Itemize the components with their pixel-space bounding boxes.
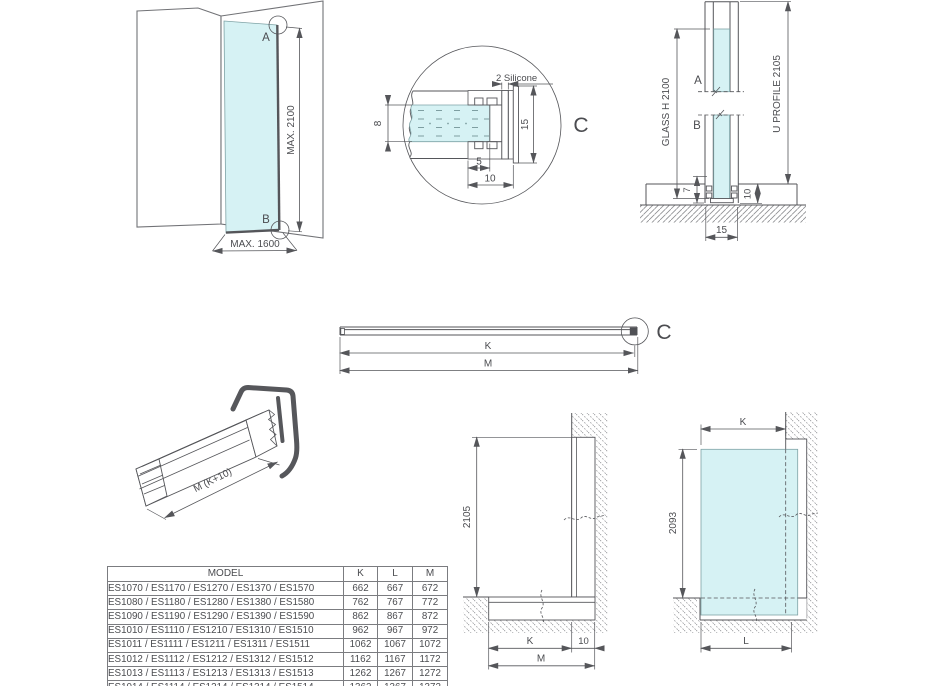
model-cell: ES1012 / ES1112 / ES1212 / ES1312 / ES15… — [108, 652, 344, 666]
silicone-label: 2 Silicone — [496, 73, 537, 84]
dim-15: 15 — [716, 225, 728, 236]
max-width-dim: MAX. 1600 — [230, 239, 280, 250]
gasket — [732, 186, 738, 191]
header-model: MODEL — [108, 567, 344, 582]
profile-outer-wall — [513, 86, 518, 163]
gasket-notch — [487, 142, 497, 149]
profile-bar — [340, 327, 637, 335]
model-cell: ES1013 / ES1113 / ES1213 / ES1313 / ES15… — [108, 667, 344, 681]
floor-hatch — [640, 206, 806, 223]
top-profile-view: K M C — [340, 318, 672, 374]
gasket-notch — [487, 98, 497, 105]
dimension-cell: 1367 — [378, 681, 413, 686]
point-b-label: B — [262, 214, 270, 226]
point-a-label: A — [262, 32, 270, 44]
dimension-cell: 1072 — [413, 638, 448, 652]
gasket — [706, 193, 712, 198]
corner-panel-view: A B MAX. 2100 MAX. 1600 — [137, 1, 323, 251]
model-table-row: ES1013 / ES1113 / ES1213 / ES1313 / ES15… — [108, 667, 448, 681]
dim-k: K — [485, 341, 492, 352]
model-table-row: ES1012 / ES1112 / ES1212 / ES1312 / ES15… — [108, 652, 448, 666]
header-k: K — [344, 567, 378, 582]
glass-lower — [714, 115, 730, 199]
technical-drawing-canvas: A B MAX. 2100 MAX. 1600 8 — [0, 0, 928, 686]
dim-m: M — [537, 654, 545, 665]
dimension-cell: 962 — [344, 624, 378, 638]
left-wall — [137, 8, 221, 227]
height-dim: 2105 — [462, 505, 473, 528]
detail-c-label: C — [656, 321, 671, 344]
glass-panel — [701, 449, 798, 615]
model-cell: ES1090 / ES1190 / ES1290 / ES1390 / ES15… — [108, 610, 344, 624]
model-cell: ES1014 / ES1114 / ES1214 / ES1314 / ES15… — [108, 681, 344, 686]
dim-k: K — [740, 417, 747, 428]
profile-end-left — [341, 328, 345, 334]
dimension-cell: 972 — [413, 624, 448, 638]
dimension-cell: 1262 — [344, 667, 378, 681]
max-height-dim: MAX. 2100 — [286, 105, 297, 155]
header-l: L — [378, 567, 413, 582]
dim-k: K — [527, 636, 534, 647]
dimension-cell: 1067 — [378, 638, 413, 652]
glass-upper — [714, 29, 730, 92]
gasket — [732, 193, 738, 198]
point-a-label: A — [694, 75, 702, 87]
model-cell: ES1010 / ES1110 / ES1210 / ES1310 / ES15… — [108, 624, 344, 638]
floor-hatch — [673, 598, 697, 620]
model-table-row: ES1090 / ES1190 / ES1290 / ES1390 / ES15… — [108, 610, 448, 624]
model-table-row: ES1011 / ES1111 / ES1211 / ES1311 / ES15… — [108, 638, 448, 652]
dim-7: 7 — [682, 187, 693, 192]
gasket-notch — [475, 142, 483, 149]
point-b-label: B — [693, 120, 701, 132]
dim-10: 10 — [743, 189, 754, 200]
floor-hatch — [463, 620, 608, 633]
wall-profile — [572, 437, 595, 597]
end-cap-inner-leg — [278, 398, 283, 441]
wall-hatch — [786, 412, 818, 439]
outer-depth-dim: 10 — [484, 174, 496, 185]
dim-m: M — [484, 359, 492, 370]
profile-height-dim: 15 — [520, 119, 531, 131]
dimension-cell: 1172 — [413, 652, 448, 666]
silicone-strip — [490, 105, 502, 142]
model-table-row: ES1080 / ES1180 / ES1280 / ES1380 / ES15… — [108, 596, 448, 610]
dimension-cell: 1162 — [344, 652, 378, 666]
glass-thickness-dim: 8 — [373, 120, 384, 126]
u-profile-label: U PROFILE 2105 — [772, 55, 783, 133]
glass-elevation: K 2093 L — [668, 412, 818, 653]
dimension-cell: 1372 — [413, 681, 448, 686]
profile-3d-view: M (K+10) — [136, 388, 297, 520]
setting-block — [711, 199, 734, 203]
dimension-cell: 672 — [413, 582, 448, 596]
model-cell: ES1011 / ES1111 / ES1211 / ES1311 / ES15… — [108, 638, 344, 652]
dimension-cell: 867 — [378, 610, 413, 624]
dimension-cell: 1362 — [344, 681, 378, 686]
wall-hatch — [807, 439, 818, 620]
dimension-cell: 767 — [378, 596, 413, 610]
dimension-cell: 1267 — [378, 667, 413, 681]
inner-depth-dim: 5 — [476, 157, 482, 168]
header-m: M — [413, 567, 448, 582]
model-size-table: MODEL K L M ES1070 / ES1170 / ES1270 / E… — [107, 566, 448, 686]
dimension-cell: 662 — [344, 582, 378, 596]
dimension-cell: 967 — [378, 624, 413, 638]
gasket-notch — [475, 98, 483, 105]
model-table-row: ES1070 / ES1170 / ES1270 / ES1370 / ES15… — [108, 582, 448, 596]
dim-10: 10 — [578, 636, 589, 647]
profile-back-wall — [508, 91, 513, 160]
dimension-cell: 872 — [413, 610, 448, 624]
glass-height-dim: 2093 — [668, 511, 679, 534]
model-cell: ES1080 / ES1180 / ES1280 / ES1380 / ES15… — [108, 596, 344, 610]
model-cell: ES1070 / ES1170 / ES1270 / ES1370 / ES15… — [108, 582, 344, 596]
dimension-cell: 1167 — [378, 652, 413, 666]
floor-hatch — [673, 620, 818, 633]
model-table-header-row: MODEL K L M — [108, 567, 448, 582]
glass-panel — [224, 21, 279, 233]
floor-hatch — [463, 598, 489, 621]
model-table: MODEL K L M ES1070 / ES1170 / ES1270 / E… — [107, 566, 448, 686]
dimension-cell: 667 — [378, 582, 413, 596]
profile-detail-c: 8 15 5 10 2 Silicone C — [373, 46, 589, 204]
detail-c-label: C — [573, 114, 588, 137]
dimension-cell: 762 — [344, 596, 378, 610]
dimension-cell: 1272 — [413, 667, 448, 681]
dimension-cell: 772 — [413, 596, 448, 610]
model-table-row: ES1014 / ES1114 / ES1214 / ES1314 / ES15… — [108, 681, 448, 686]
wall-hatch — [572, 413, 608, 437]
dimension-cell: 1062 — [344, 638, 378, 652]
glass-height-label: GLASS H 2100 — [661, 77, 672, 146]
model-table-row: ES1010 / ES1110 / ES1210 / ES1310 / ES15… — [108, 624, 448, 638]
gasket — [706, 186, 712, 191]
wall-hatch — [595, 437, 608, 620]
wall-mount-section: 2105 K 10 M — [462, 413, 608, 670]
dimension-cell: 862 — [344, 610, 378, 624]
dim-l: L — [743, 636, 749, 647]
silicone-slot — [502, 91, 509, 160]
vertical-section: A B GLASS H 2100 U PROFILE 2105 7 10 15 — [640, 2, 806, 241]
profile-end-section — [630, 328, 637, 335]
